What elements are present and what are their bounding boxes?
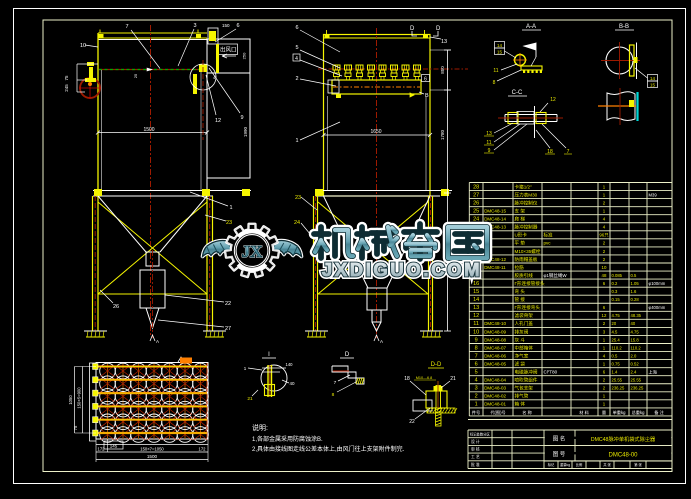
svg-text:250: 250 xyxy=(242,52,247,59)
svg-text:0.5: 0.5 xyxy=(612,353,618,358)
svg-text:DMC48-15: DMC48-15 xyxy=(484,209,506,214)
svg-text:φ100mm: φ100mm xyxy=(649,281,666,286)
svg-text:0.2: 0.2 xyxy=(612,281,618,286)
svg-text:弯 头: 弯 头 xyxy=(515,288,526,295)
svg-text:28: 28 xyxy=(473,184,479,190)
svg-text:0.15: 0.15 xyxy=(612,297,621,302)
svg-text:DMC48-02: DMC48-02 xyxy=(484,394,506,399)
svg-text:145: 145 xyxy=(110,444,118,449)
svg-text:8: 8 xyxy=(332,392,335,398)
svg-text:3: 3 xyxy=(475,386,478,392)
svg-text:850: 850 xyxy=(440,66,445,74)
svg-text:比例: 比例 xyxy=(576,462,583,467)
svg-text:脉冲控制器: 脉冲控制器 xyxy=(515,224,538,231)
svg-text:0.28: 0.28 xyxy=(631,297,640,302)
svg-text:1: 1 xyxy=(229,205,232,211)
svg-text:Γ形连接管接头: Γ形连接管接头 xyxy=(515,280,545,287)
svg-text:DMC48-01: DMC48-01 xyxy=(484,402,506,407)
svg-text:172: 172 xyxy=(98,447,106,452)
svg-text:9: 9 xyxy=(240,115,243,121)
svg-text:2.0: 2.0 xyxy=(631,353,637,358)
svg-text:11: 11 xyxy=(473,321,479,327)
svg-text:Γ形连接弯头: Γ形连接弯头 xyxy=(515,304,541,311)
svg-text:3: 3 xyxy=(193,23,196,29)
svg-text:7: 7 xyxy=(475,353,478,359)
svg-text:DMC48-11: DMC48-11 xyxy=(484,265,506,270)
svg-text:件号: 件号 xyxy=(472,409,480,416)
svg-text:26: 26 xyxy=(113,304,119,310)
svg-text:140: 140 xyxy=(286,362,294,367)
svg-text:14: 14 xyxy=(473,297,479,303)
svg-text:标准: 标准 xyxy=(544,232,553,239)
svg-text:23: 23 xyxy=(295,195,301,201)
svg-text:22: 22 xyxy=(225,301,231,307)
svg-text:12: 12 xyxy=(215,118,221,124)
svg-text:脉冲控制仪: 脉冲控制仪 xyxy=(515,199,538,206)
svg-text:共 张: 共 张 xyxy=(603,462,611,467)
svg-text:批 准: 批 准 xyxy=(471,462,480,467)
svg-text:M10×35螺栓: M10×35螺栓 xyxy=(515,248,541,255)
svg-text:25.55: 25.55 xyxy=(612,378,623,383)
svg-text:5: 5 xyxy=(475,370,478,376)
svg-text:卡箍1/2″: 卡箍1/2″ xyxy=(515,183,533,190)
svg-text:0.5: 0.5 xyxy=(631,273,637,278)
svg-text:代(图)号: 代(图)号 xyxy=(490,409,505,416)
svg-text:6: 6 xyxy=(295,25,298,31)
svg-text:8: 8 xyxy=(493,80,496,86)
svg-text:27: 27 xyxy=(225,326,231,332)
svg-text:24: 24 xyxy=(473,217,479,223)
svg-text:滤袋骨架: 滤袋骨架 xyxy=(515,312,534,319)
svg-text:15: 15 xyxy=(650,83,656,88)
svg-text:M39: M39 xyxy=(649,192,658,197)
svg-text:DMC48-07: DMC48-07 xyxy=(484,345,506,350)
svg-text:D: D xyxy=(436,26,441,32)
svg-text:75: 75 xyxy=(64,75,69,81)
svg-text:净气室: 净气室 xyxy=(515,352,529,359)
svg-text:236.25: 236.25 xyxy=(612,386,625,391)
svg-text:量: 量 xyxy=(602,409,606,416)
svg-text:1: 1 xyxy=(295,138,298,144)
svg-text:DMC48-09: DMC48-09 xyxy=(484,329,506,334)
svg-text:支 架: 支 架 xyxy=(515,208,526,215)
svg-text:0.085: 0.085 xyxy=(612,273,623,278)
svg-text:滤 袋: 滤 袋 xyxy=(515,360,526,367)
svg-text:标记处数分区: 标记处数分区 xyxy=(470,432,490,437)
svg-text:材 料: 材 料 xyxy=(579,409,589,416)
svg-text:10: 10 xyxy=(602,265,607,270)
svg-text:箱 体: 箱 体 xyxy=(515,401,526,408)
svg-text:27: 27 xyxy=(473,192,479,198)
svg-text:11: 11 xyxy=(493,68,498,74)
svg-text:1780: 1780 xyxy=(440,129,445,140)
svg-text:150: 150 xyxy=(222,23,230,28)
svg-text:9: 9 xyxy=(475,337,478,343)
svg-text:D: D xyxy=(345,352,350,358)
svg-text:平 垫: 平 垫 xyxy=(515,240,526,247)
svg-text:中部箱体: 中部箱体 xyxy=(515,344,534,351)
svg-text:4: 4 xyxy=(295,56,298,62)
svg-text:12: 12 xyxy=(602,313,607,318)
svg-text:1500: 1500 xyxy=(143,127,154,133)
svg-text:1.05: 1.05 xyxy=(631,281,640,286)
svg-text:4.75: 4.75 xyxy=(631,329,640,334)
svg-text:10: 10 xyxy=(473,329,479,335)
svg-text:2.4: 2.4 xyxy=(631,370,637,375)
svg-text:4: 4 xyxy=(475,378,478,384)
svg-text:0.75: 0.75 xyxy=(612,361,621,366)
svg-text:出风口: 出风口 xyxy=(220,46,237,54)
svg-text:14: 14 xyxy=(497,43,503,48)
svg-text:Cl″T80: Cl″T80 xyxy=(544,370,558,375)
svg-text:pvc: pvc xyxy=(544,241,552,246)
svg-text:JXDIGUO.COM: JXDIGUO.COM xyxy=(322,259,482,280)
svg-text:DMC48-03: DMC48-03 xyxy=(484,386,506,391)
svg-text:A: A xyxy=(156,339,159,344)
svg-text:2: 2 xyxy=(475,394,478,400)
svg-text:工 艺: 工 艺 xyxy=(471,454,480,459)
svg-text:设 计: 设 计 xyxy=(471,439,480,444)
svg-text:25.55: 25.55 xyxy=(631,378,642,383)
svg-text:DMC48-14: DMC48-14 xyxy=(484,217,506,222)
svg-text:1,各部金属采用防腐蚀涂B.: 1,各部金属采用防腐蚀涂B. xyxy=(252,435,323,443)
svg-text:B-B: B-B xyxy=(619,24,629,30)
svg-text:15.8: 15.8 xyxy=(631,337,640,342)
svg-text:D: D xyxy=(410,26,415,32)
svg-text:0.52: 0.52 xyxy=(631,361,640,366)
svg-text:25: 25 xyxy=(473,209,479,215)
svg-text:16: 16 xyxy=(473,281,479,287)
svg-text:0.3: 0.3 xyxy=(612,289,618,294)
svg-text:第 张: 第 张 xyxy=(634,462,642,467)
svg-text:150×5=900: 150×5=900 xyxy=(77,387,82,409)
svg-text:人孔门盖: 人孔门盖 xyxy=(515,320,534,327)
svg-text:C-C: C-C xyxy=(512,90,523,96)
svg-text:U形卡: U形卡 xyxy=(515,232,528,239)
svg-text:备 注: 备 注 xyxy=(654,409,664,416)
svg-text:DMC48-06: DMC48-06 xyxy=(484,353,506,358)
svg-text:图 名: 图 名 xyxy=(553,435,566,443)
svg-text:20: 20 xyxy=(612,321,617,326)
svg-text:1990: 1990 xyxy=(243,126,248,137)
svg-text:150×7=1050: 150×7=1050 xyxy=(140,447,164,452)
svg-text:2: 2 xyxy=(295,76,298,82)
svg-text:A-A: A-A xyxy=(526,24,536,30)
svg-text:75: 75 xyxy=(73,425,78,430)
svg-text:5: 5 xyxy=(295,45,298,51)
svg-text:236.25: 236.25 xyxy=(631,386,644,391)
svg-text:气包支架: 气包支架 xyxy=(515,385,534,392)
svg-text:φ400mm: φ400mm xyxy=(649,305,666,310)
svg-text:排灰阀: 排灰阀 xyxy=(515,328,529,335)
svg-text:标记: 标记 xyxy=(548,462,555,467)
svg-text:23: 23 xyxy=(226,220,232,226)
svg-text:DMC48脉冲单机袋式除尘器: DMC48脉冲单机袋式除尘器 xyxy=(591,435,656,443)
svg-text:胶质引线: 胶质引线 xyxy=(515,272,534,279)
svg-text:D-D: D-D xyxy=(431,362,442,368)
svg-text:24: 24 xyxy=(294,220,300,226)
svg-text:DMC48-08: DMC48-08 xyxy=(484,337,506,342)
svg-text:7: 7 xyxy=(125,24,128,30)
svg-text:2,具体由接线图走线公差本体上,由风门往上支架附件制完.: 2,具体由接线图走线公差本体上,由风门往上支架附件制完. xyxy=(252,445,405,453)
svg-text:1500: 1500 xyxy=(147,454,158,459)
svg-text:172: 172 xyxy=(199,447,207,452)
svg-text:重量kg: 重量kg xyxy=(560,462,570,467)
svg-text:4: 4 xyxy=(213,76,215,80)
svg-text:防雨帽盖板: 防雨帽盖板 xyxy=(515,256,538,263)
svg-text:110.2: 110.2 xyxy=(631,345,642,350)
svg-text:21: 21 xyxy=(450,376,456,382)
svg-text:8: 8 xyxy=(475,345,478,351)
svg-text:25.4: 25.4 xyxy=(612,337,621,342)
svg-text:18: 18 xyxy=(404,376,410,382)
svg-text:1: 1 xyxy=(475,402,478,408)
svg-text:DMC48-00: DMC48-00 xyxy=(608,453,638,459)
svg-text:25: 25 xyxy=(133,73,138,78)
svg-text:1.6: 1.6 xyxy=(631,289,637,294)
svg-text:110.2: 110.2 xyxy=(612,345,623,350)
svg-text:6: 6 xyxy=(475,361,478,367)
svg-text:1650: 1650 xyxy=(370,129,381,135)
svg-text:40: 40 xyxy=(631,321,636,326)
svg-text:审 核: 审 核 xyxy=(471,447,480,452)
svg-text:22: 22 xyxy=(409,419,415,425)
svg-text:DMC48-10: DMC48-10 xyxy=(484,321,506,326)
svg-text:拉筋: 拉筋 xyxy=(515,264,525,271)
svg-text:喷吹管组件: 喷吹管组件 xyxy=(515,377,538,384)
svg-text:单重kg: 单重kg xyxy=(613,409,626,416)
svg-text:26: 26 xyxy=(473,200,479,206)
svg-text:12: 12 xyxy=(473,313,479,319)
svg-text:压力表M30: 压力表M30 xyxy=(515,191,538,198)
svg-text:48: 48 xyxy=(602,273,607,278)
svg-text:7: 7 xyxy=(334,380,337,386)
svg-text:M10—6.8: M10—6.8 xyxy=(416,376,432,380)
svg-text:48.35: 48.35 xyxy=(631,313,642,318)
svg-text:爬 梯: 爬 梯 xyxy=(515,216,526,223)
svg-text:DMC48-04: DMC48-04 xyxy=(484,378,506,383)
svg-text:名 称: 名 称 xyxy=(522,409,532,416)
svg-text:21: 21 xyxy=(247,396,253,402)
svg-text:6: 6 xyxy=(236,23,239,29)
svg-text:13: 13 xyxy=(473,305,479,311)
svg-text:上海: 上海 xyxy=(649,369,658,376)
svg-text:排气管: 排气管 xyxy=(515,393,529,400)
svg-text:JX: JX xyxy=(242,242,264,261)
svg-text:图 号: 图 号 xyxy=(553,450,566,458)
svg-text:电磁脉冲阀: 电磁脉冲阀 xyxy=(515,369,538,376)
svg-text:40: 40 xyxy=(289,381,295,386)
svg-text:A: A xyxy=(380,339,383,344)
svg-text:6: 6 xyxy=(424,77,427,83)
svg-text:4.75: 4.75 xyxy=(612,313,621,318)
svg-text:1.4: 1.4 xyxy=(612,370,618,375)
svg-text:12: 12 xyxy=(550,97,556,103)
svg-text:245: 245 xyxy=(64,84,69,92)
svg-text:说明:: 说明: xyxy=(252,423,268,432)
svg-text:4.5: 4.5 xyxy=(612,329,618,334)
svg-text:15: 15 xyxy=(473,289,479,295)
svg-text:φ1钢丝绳W: φ1钢丝绳W xyxy=(544,272,568,279)
svg-text:灰 斗: 灰 斗 xyxy=(515,336,526,343)
svg-text:15: 15 xyxy=(497,50,503,55)
svg-text:1050: 1050 xyxy=(68,395,73,405)
svg-text:管 接: 管 接 xyxy=(515,296,526,303)
svg-text:DMC48-05: DMC48-05 xyxy=(484,361,506,366)
svg-text:14: 14 xyxy=(650,76,656,81)
svg-text:总重kg: 总重kg xyxy=(632,409,645,415)
svg-text:13: 13 xyxy=(441,39,447,45)
svg-text:B: B xyxy=(425,93,429,99)
svg-text:10: 10 xyxy=(80,43,86,49)
